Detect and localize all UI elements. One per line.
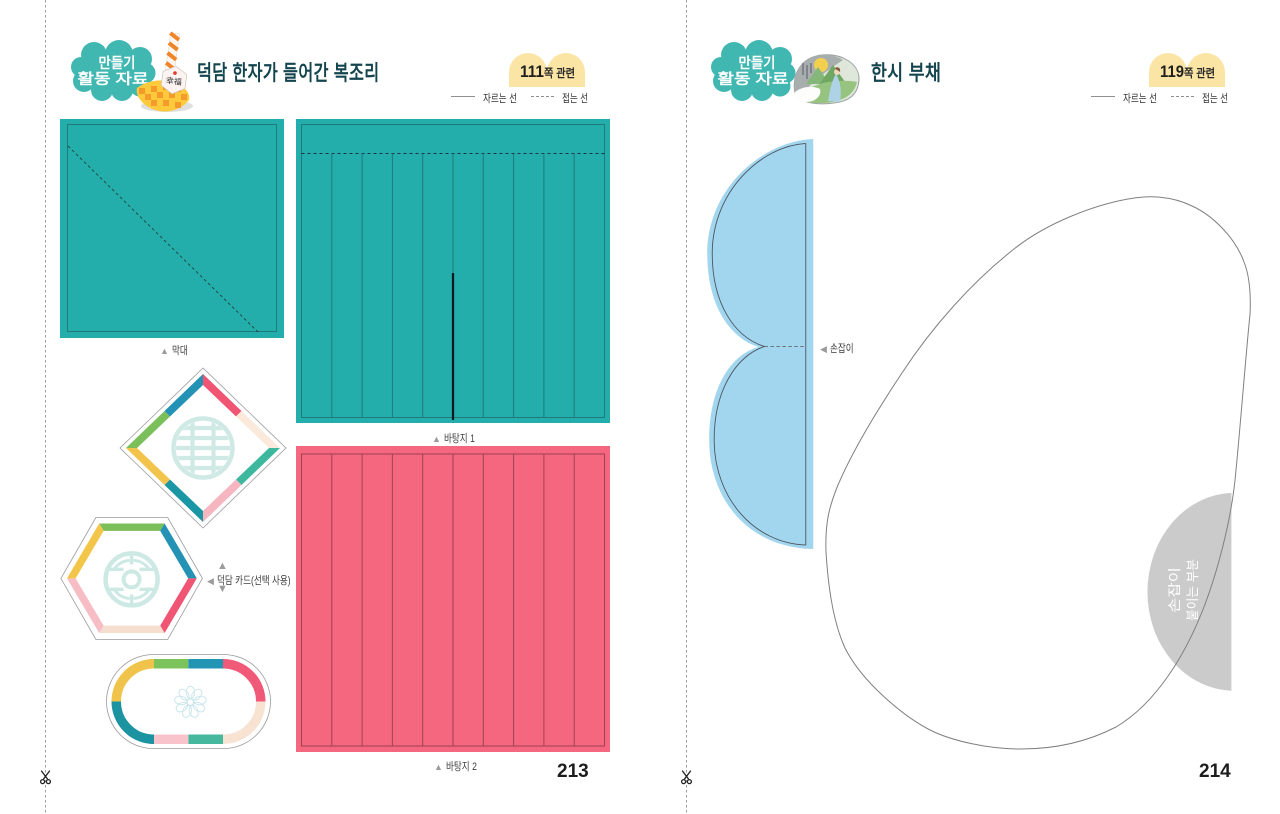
svg-text:만들기: 만들기 — [739, 55, 776, 72]
svg-text:쪽 관련: 쪽 관련 — [544, 66, 575, 80]
svg-text:쪽 관련: 쪽 관련 — [1184, 66, 1215, 80]
svg-text:붙이는 부분: 붙이는 부분 — [1185, 559, 1200, 621]
svg-text:119: 119 — [1160, 62, 1184, 81]
svg-text:손잡이: 손잡이 — [1167, 567, 1182, 613]
svg-text:111: 111 — [520, 62, 544, 81]
svg-text:활동 자료: 활동 자료 — [718, 70, 789, 88]
svg-text:만들기: 만들기 — [99, 55, 136, 72]
